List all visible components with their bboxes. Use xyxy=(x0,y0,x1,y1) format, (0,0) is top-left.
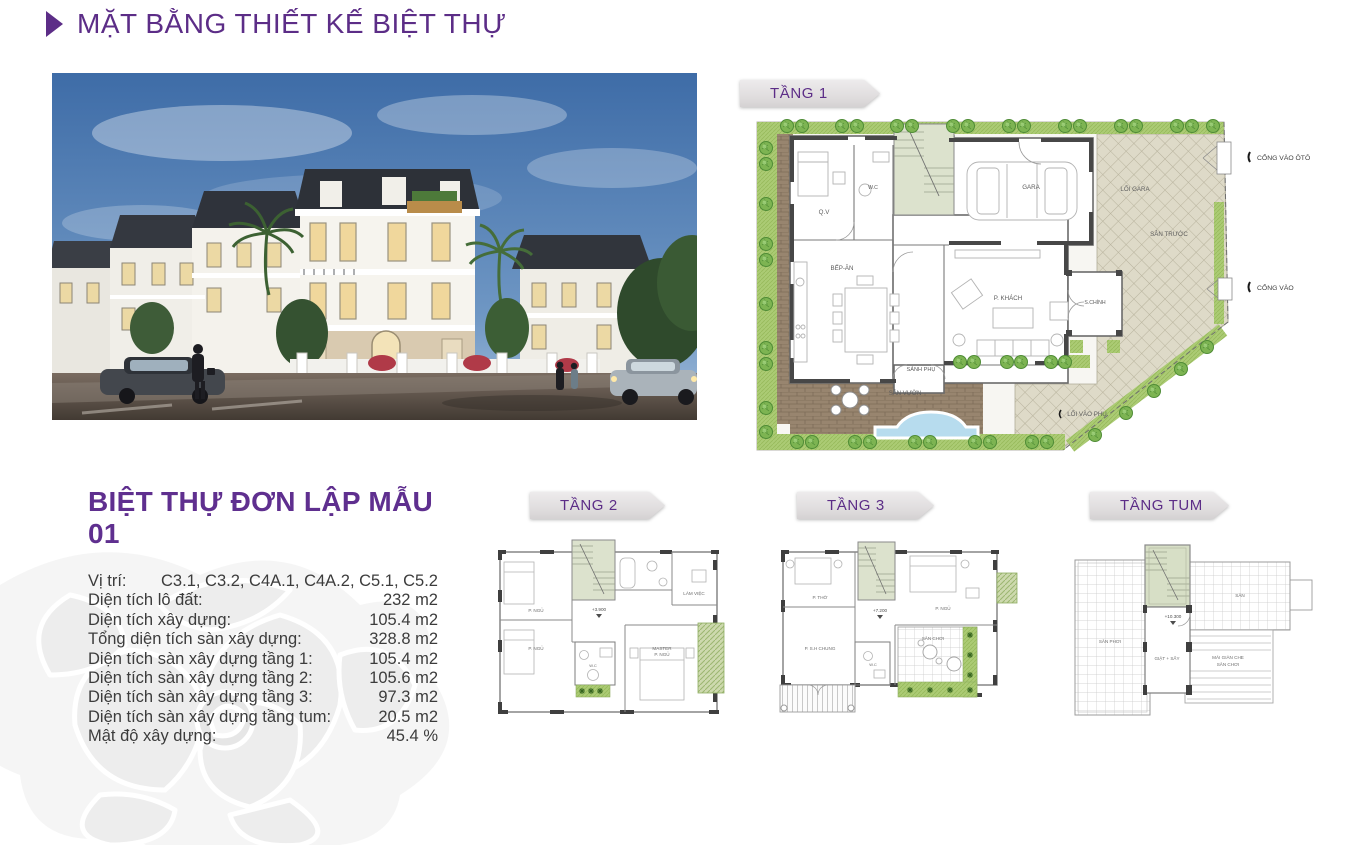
spec-row: Tổng diện tích sàn xây dựng: 328.8 m2 xyxy=(88,630,438,649)
t3-label-pngu: P. NGỦ xyxy=(935,605,950,611)
t3-label-ptho: P. THỜ xyxy=(812,594,827,600)
room-label-gara: GARA xyxy=(1022,184,1040,191)
t2-label-pngu2: P. NGỦ xyxy=(528,645,543,651)
banner-tang-3: TẦNG 3 xyxy=(797,492,934,519)
spec-value: C3.1, C3.2, C4A.1, C4A.2, C5.1, C5.2 xyxy=(161,572,438,591)
floor-plan-tang-1: Q.V W.C BẾP-ĂN GARA P. KHÁCH S.CHÍNH SẢN… xyxy=(745,112,1345,457)
spec-label: Diện tích sàn xây dựng tầng 2: xyxy=(88,669,313,688)
room-label-pkhach: P. KHÁCH xyxy=(994,295,1022,302)
spec-value: 232 m2 xyxy=(383,591,438,610)
spec-row: Mật độ xây dựng: 45.4 % xyxy=(88,727,438,746)
spec-row: Diện tích lô đất: 232 m2 xyxy=(88,591,438,610)
spec-label: Diện tích sàn xây dựng tầng 3: xyxy=(88,688,313,707)
spec-value: 105.6 m2 xyxy=(369,669,438,688)
spec-value: 105.4 m2 xyxy=(369,650,438,669)
spec-value: 97.3 m2 xyxy=(378,688,438,707)
spec-value: 105.4 m2 xyxy=(369,611,438,630)
tum-label-giatsay: GIẶT + SẤY xyxy=(1154,655,1179,661)
spec-row: Diện tích sàn xây dựng tầng tum: 20.5 m2 xyxy=(88,708,438,727)
spec-row: Diện tích sàn xây dựng tầng 2: 105.6 m2 xyxy=(88,669,438,688)
spec-table: Vị trí: C3.1, C3.2, C4A.1, C4A.2, C5.1, … xyxy=(88,572,438,747)
spec-label: Diện tích sàn xây dựng tầng 1: xyxy=(88,650,313,669)
t3-stairs xyxy=(858,542,895,600)
t2-label-master1: MASTER xyxy=(652,646,672,651)
t2-label-wc: W.C xyxy=(589,663,597,668)
spec-value: 45.4 % xyxy=(387,727,438,746)
spec-value: 20.5 m2 xyxy=(378,708,438,727)
villa-photo xyxy=(52,73,697,420)
page-title: MẶT BẰNG THIẾT KẾ BIỆT THỰ xyxy=(77,8,507,40)
tum-label-level: +10.300 xyxy=(1165,614,1182,619)
banner-tang-tum-label: TẦNG TUM xyxy=(1120,497,1203,514)
banner-tang-2-label: TẦNG 2 xyxy=(560,497,618,514)
spec-label: Mật độ xây dựng: xyxy=(88,727,216,746)
floor-plan-tang-tum: SÂN PHƠI SÂN GIẶT + SẤY MÁI GIÀN CHE SÂN… xyxy=(1060,530,1340,730)
room-label-santruoc: SÂN TRƯỚC xyxy=(1150,231,1188,238)
tum-label-sanphoi: SÂN PHƠI xyxy=(1099,638,1121,644)
spec-label: Diện tích sàn xây dựng tầng tum: xyxy=(88,708,331,727)
room-label-sanhphu: SẢNH PHỤ xyxy=(907,366,936,373)
spec-row: Vị trí: C3.1, C3.2, C4A.1, C4A.2, C5.1, … xyxy=(88,572,438,591)
tum-label-maigianche1: MÁI GIÀN CHE xyxy=(1212,654,1244,660)
room-label-schinh: S.CHÍNH xyxy=(1084,299,1106,306)
banner-tang-tum: TẦNG TUM xyxy=(1090,492,1229,519)
spec-row: Diện tích xây dựng: 105.4 m2 xyxy=(88,611,438,630)
page-header: MẶT BẰNG THIẾT KẾ BIỆT THỰ xyxy=(46,8,507,40)
banner-tang-1: TẦNG 1 xyxy=(740,80,880,107)
t2-stairs xyxy=(572,540,615,600)
tum-label-san: SÂN xyxy=(1235,592,1244,598)
room-label-loigara: LỐI GARA xyxy=(1120,186,1150,193)
spec-label: Tổng diện tích sàn xây dựng: xyxy=(88,630,302,649)
floor-plan-tang-3: P. THỜ P. NGỦ P. S.H CHUNG W.C SÂN CHƠI … xyxy=(770,530,1050,735)
t2-planter xyxy=(576,685,610,697)
spec-row: Diện tích sàn xây dựng tầng 3: 97.3 m2 xyxy=(88,688,438,707)
spec-label: Diện tích lô đất: xyxy=(88,591,203,610)
t3-label-wc: W.C xyxy=(869,662,877,667)
villa-title: BIỆT THỰ ĐƠN LẬP MẪU 01 xyxy=(88,486,438,550)
t3-label-sanchoi: SÂN CHƠI xyxy=(922,635,945,641)
header-arrow-icon xyxy=(46,11,63,37)
t3-label-pshchung: P. S.H CHUNG xyxy=(805,646,836,651)
room-label-sanvuon: SÂN VƯỜN xyxy=(889,390,922,397)
stairs-tang1 xyxy=(894,124,954,215)
t2-label-lamviec: LÀM VIỆC xyxy=(683,589,705,596)
spec-label: Diện tích xây dựng: xyxy=(88,611,231,630)
spec-label: Vị trí: xyxy=(88,572,127,591)
spec-value: 328.8 m2 xyxy=(369,630,438,649)
t3-label-level: +7.200 xyxy=(873,608,888,613)
room-label-bep: BẾP-ĂN xyxy=(830,265,853,272)
room-label-loivaophu: LỐI VÀO PHỤ xyxy=(1067,411,1107,418)
t2-label-master2: P. NGỦ xyxy=(654,651,669,657)
gate-label-nguoi: CỔNG VÀO xyxy=(1257,283,1294,292)
banner-tang-1-label: TẦNG 1 xyxy=(770,85,828,102)
tum-roofs xyxy=(1075,560,1312,715)
t2-label-pngu1: P. NGỦ xyxy=(528,607,543,613)
spec-row: Diện tích sàn xây dựng tầng 1: 105.4 m2 xyxy=(88,650,438,669)
tum-stairs xyxy=(1145,545,1190,607)
floor-plan-tang-2: P. NGỦ P. NGỦ MASTER P. NGỦ LÀM VIỆC W.C… xyxy=(480,530,740,730)
room-label-qv: Q.V xyxy=(819,209,831,216)
banner-tang-3-label: TẦNG 3 xyxy=(827,497,885,514)
t2-label-level: +3.900 xyxy=(592,607,607,612)
room-label-wc: W.C xyxy=(868,185,878,191)
t2-balcony xyxy=(698,623,724,693)
gate-label-oto: CỔNG VÀO ÔTÔ xyxy=(1257,153,1310,162)
villa-info: BIỆT THỰ ĐƠN LẬP MẪU 01 Vị trí: C3.1, C3… xyxy=(88,486,438,747)
tum-label-maigianche2: SÂN CHƠI xyxy=(1217,661,1240,667)
banner-tang-2: TẦNG 2 xyxy=(530,492,665,519)
